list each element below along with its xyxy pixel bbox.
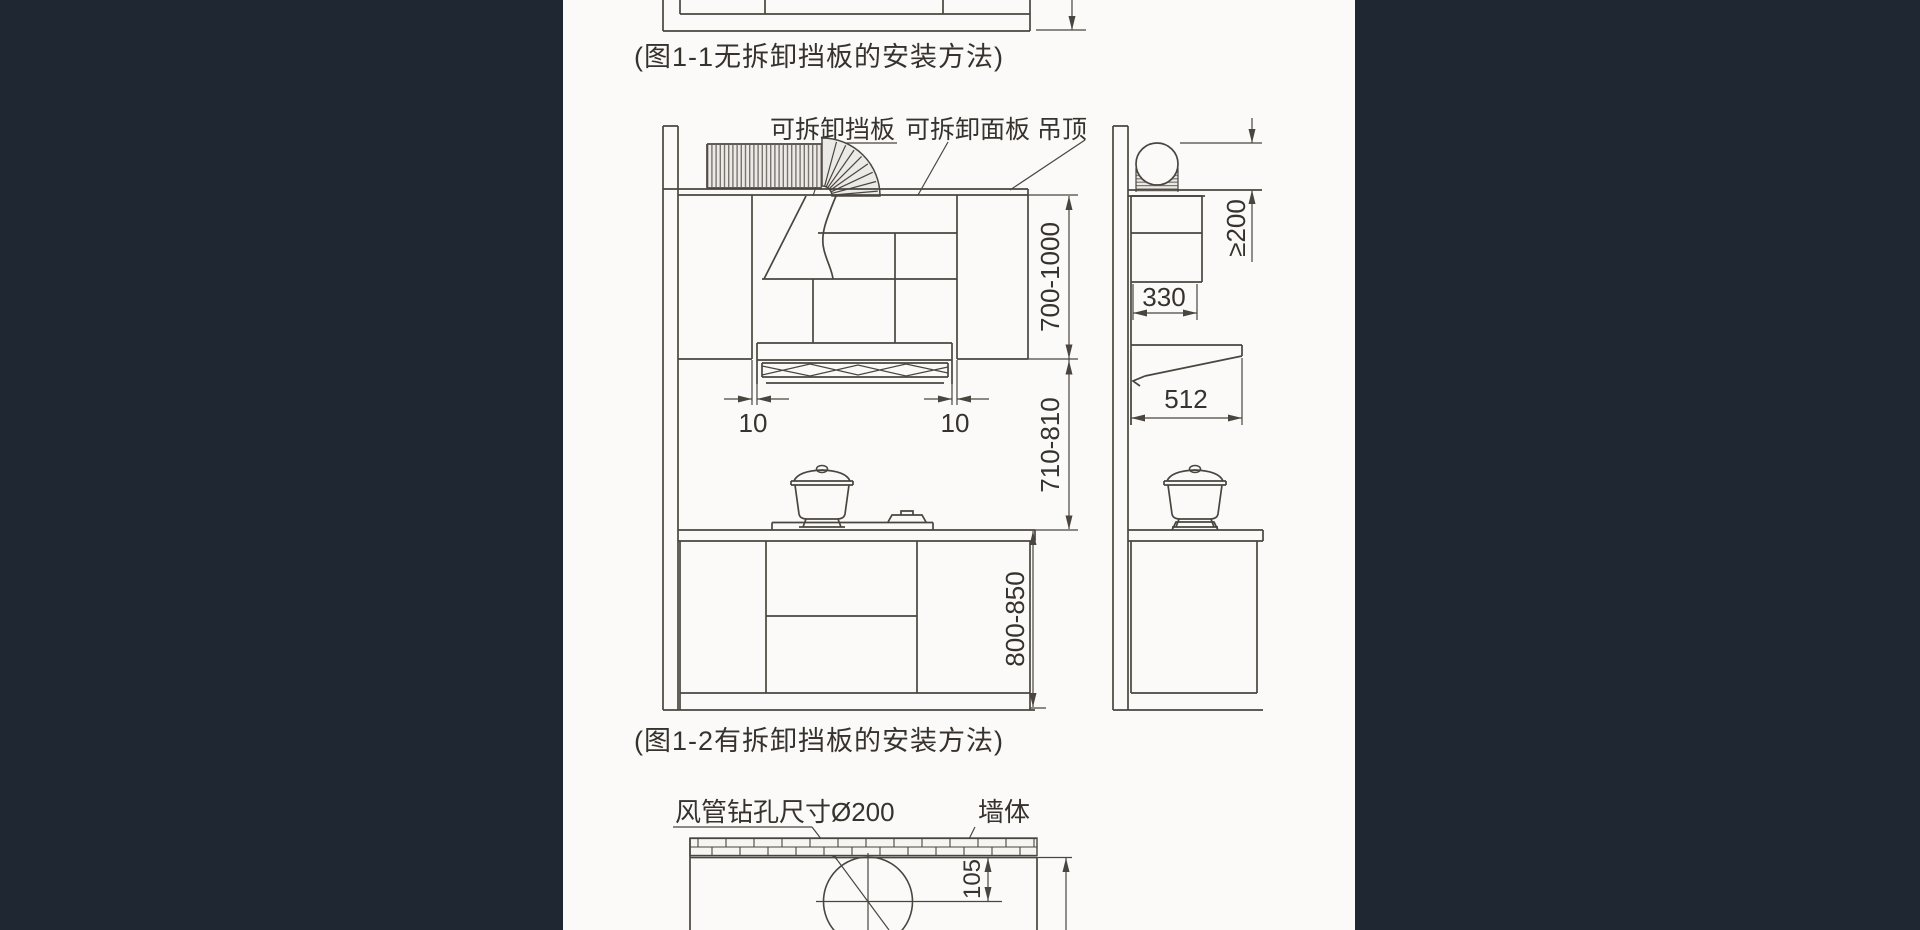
- pot-front: [791, 466, 853, 528]
- figure-1-1-fragment: (图1-1无拆卸挡板的安装方法): [634, 0, 1086, 72]
- dimension-center-offset: 105: [959, 858, 992, 901]
- side-counter-cabinet: [1113, 530, 1263, 710]
- svg-text:710-810: 710-810: [1035, 397, 1065, 492]
- svg-text:512: 512: [1164, 384, 1207, 414]
- side-canopy: [1131, 345, 1242, 386]
- side-wall: [1113, 126, 1128, 710]
- dimension-800-850: 800-850: [1000, 531, 1046, 708]
- pot-side: [1164, 466, 1226, 531]
- front-wall: [663, 126, 678, 710]
- dimension-partial: 2: [1037, 858, 1072, 930]
- label-removable-panel: 可拆卸面板: [905, 116, 1030, 144]
- installation-diagram: (图1-1无拆卸挡板的安装方法) 可拆卸挡板 可拆卸面板 吊顶: [0, 0, 1920, 930]
- gas-burner: [888, 511, 926, 522]
- dimension-hood-depth: 330: [1133, 282, 1197, 320]
- label-duct-hole-size: 风管钻孔尺寸Ø200: [675, 797, 895, 827]
- svg-text:800-850: 800-850: [1000, 571, 1030, 666]
- svg-text:700-1000: 700-1000: [1035, 222, 1065, 332]
- label-ceiling: 吊顶: [1037, 116, 1087, 144]
- base-cabinets: [663, 541, 1035, 710]
- svg-text:330: 330: [1142, 282, 1185, 312]
- flexible-duct: [707, 138, 880, 196]
- dimension-710-810: 710-810: [1035, 361, 1078, 531]
- countertop-front: [678, 511, 1035, 541]
- label-wall: 墙体: [978, 797, 1030, 827]
- svg-text:10: 10: [941, 408, 970, 438]
- svg-text:10: 10: [739, 408, 768, 438]
- figure-1-2-side-view: ≥200 330 512: [1113, 118, 1263, 710]
- svg-text:≥200: ≥200: [1221, 199, 1251, 257]
- dimension-gap-right: 10: [924, 360, 989, 438]
- hood-canopy: [757, 343, 952, 384]
- figure-1-1-dimension-stub: [1036, 0, 1086, 30]
- upper-cabinets: [678, 195, 1028, 359]
- figure-1-2-front-view: 可拆卸挡板 可拆卸面板 吊顶: [634, 116, 1087, 756]
- duct-damper: [764, 196, 836, 279]
- svg-text:105: 105: [959, 859, 986, 899]
- figure-1-2-caption: (图1-2有拆卸挡板的安装方法): [634, 726, 1004, 756]
- figure-1-1-caption: (图1-1无拆卸挡板的安装方法): [634, 42, 1004, 72]
- duct-hole-figure: 风管钻孔尺寸Ø200 墙体 105 2: [673, 797, 1072, 930]
- side-duct: [1136, 143, 1178, 192]
